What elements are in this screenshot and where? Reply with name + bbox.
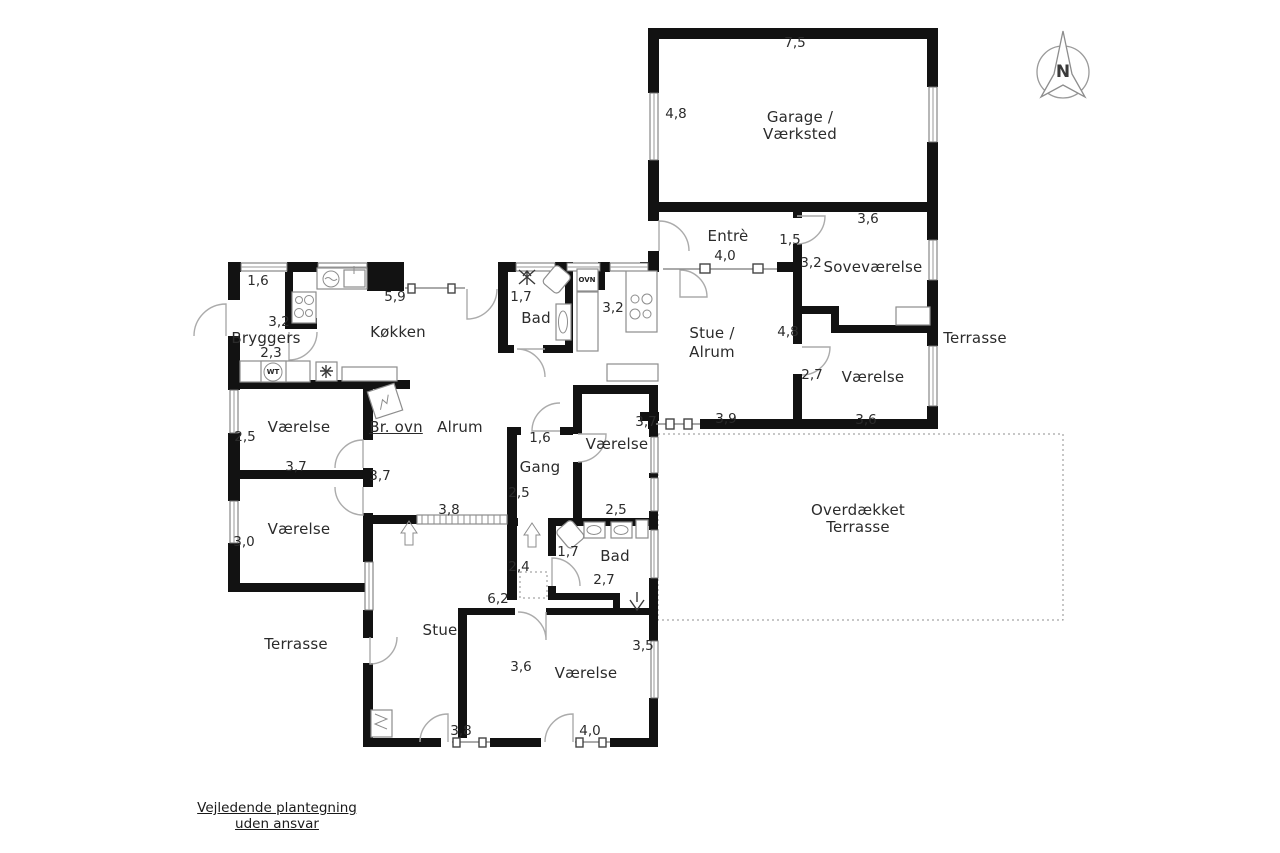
dim-stue-door: 3,8 [450, 723, 471, 739]
room-label-bad-north: Bad [521, 309, 551, 327]
room-label-entre: Entrè [708, 227, 749, 245]
dim-vaerelse-mid-height: 2,5 [605, 502, 626, 518]
room-label-overdaekket-line1: Overdækket [811, 501, 905, 519]
dim-vaerelse-nw-width: 3,7 [285, 459, 306, 475]
room-label-vaerelse-east: Værelse [842, 368, 905, 386]
dim-bad-north-width: 1,7 [510, 289, 531, 305]
dim-vaerelse-mid-width: 3,7 [635, 414, 656, 430]
room-label-br-ovn: Br. ovn [369, 418, 423, 436]
dim-entre-width: 4,0 [714, 248, 735, 264]
dim-alrum-stue-door: 3,8 [438, 502, 459, 518]
room-label-vaerelse-south: Værelse [555, 664, 618, 682]
dim-bad-south-width: 2,7 [593, 572, 614, 588]
dim-sove-window: 3,6 [857, 211, 878, 227]
direction-arrows [401, 521, 540, 547]
room-label-garage-line2: Værksted [763, 125, 837, 143]
room-label-overdaekket-line2: Terrasse [826, 518, 890, 536]
dim-vaerelse-east-width: 3,6 [855, 412, 876, 428]
dim-alrum-south-door: 3,9 [715, 411, 736, 427]
dim-vaerelse-nw-height: 2,5 [234, 429, 255, 445]
room-label-vaerelse-mid: Værelse [586, 435, 649, 453]
dim-gang-north: 1,6 [529, 430, 550, 446]
dim-entre-door: 1,5 [779, 232, 800, 248]
dim-gang-height: 2,5 [508, 485, 529, 501]
room-label-stue: Stue [423, 621, 458, 639]
washer-label: WT [267, 368, 280, 376]
room-label-gang: Gang [520, 458, 561, 476]
dim-koekken-width: 5,9 [384, 289, 405, 305]
room-label-stue-alrum-line2: Alrum [689, 343, 735, 361]
compass-north-label: N [1056, 62, 1070, 82]
oven-label: OVN [578, 276, 595, 284]
dim-hall: 2,4 [508, 559, 529, 575]
dim-bryggers-width: 3,2 [268, 314, 289, 330]
room-label-bad-south: Bad [600, 547, 630, 565]
dim-vaerelse-south-ne: 3,5 [632, 638, 653, 654]
dim-bryggers-window: 1,6 [247, 273, 268, 289]
disclaimer-line2: uden ansvar [235, 816, 319, 832]
room-label-sovevaerelse: Soveværelse [824, 258, 923, 276]
room-label-terrasse-west: Terrasse [264, 635, 328, 653]
floor-plan: Garage / Værksted Entrè Soveværelse Terr… [0, 0, 1280, 853]
dim-sove-height: 3,2 [800, 255, 821, 271]
room-label-alrum: Alrum [437, 418, 483, 436]
dim-island: 3,2 [602, 300, 623, 316]
room-label-garage-line1: Garage / [767, 108, 833, 126]
room-label-terrasse-east: Terrasse [943, 329, 1007, 347]
dim-vaerelse-south-height: 3,6 [510, 659, 531, 675]
loft-hatch [520, 572, 547, 598]
disclaimer-line1: Vejledende plantegning [197, 800, 357, 816]
dim-alrum-west: 3,7 [369, 468, 390, 484]
dim-vaerelse-east-height: 2,7 [801, 367, 822, 383]
dim-vaerelse-south-door: 4,0 [579, 723, 600, 739]
dim-garage-height: 4,8 [665, 106, 686, 122]
dim-stue-height: 6,2 [487, 591, 508, 607]
room-label-vaerelse-sw: Værelse [268, 520, 331, 538]
room-label-vaerelse-nw: Værelse [268, 418, 331, 436]
dim-bryggers-south: 2,3 [260, 345, 281, 361]
dim-garage-width: 7,5 [784, 35, 805, 51]
dim-vaerelse-sw-height: 3,0 [233, 534, 254, 550]
room-label-stue-alrum-line1: Stue / [689, 324, 734, 342]
dim-stue-alrum-height: 4,8 [777, 324, 798, 340]
room-label-koekken: Køkken [370, 323, 426, 341]
dim-bad-south-north: 1,7 [557, 544, 578, 560]
